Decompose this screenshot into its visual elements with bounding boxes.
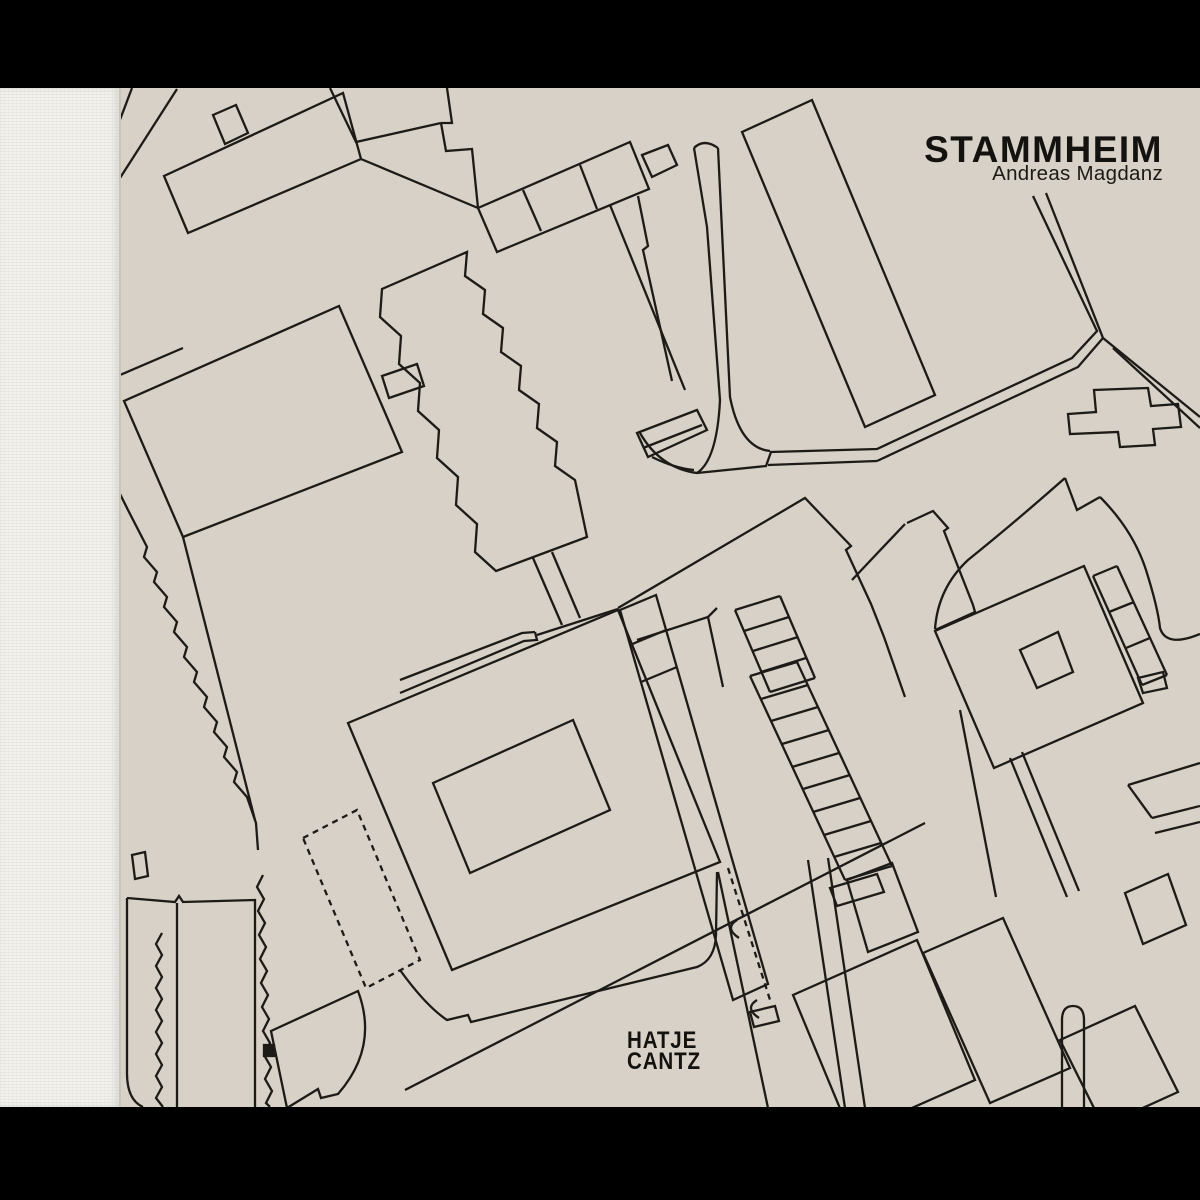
publisher-logo: HATJE CANTZ <box>627 1031 701 1072</box>
book-author: Andreas Magdanz <box>992 162 1163 186</box>
book-cover: STAMMHEIM Andreas Magdanz HATJE CANTZ <box>0 0 1200 1200</box>
bottom-frame-bar <box>0 1107 1200 1200</box>
publisher-line2: CANTZ <box>627 1048 701 1075</box>
top-frame-bar <box>0 0 1200 88</box>
book-spine <box>0 88 121 1107</box>
